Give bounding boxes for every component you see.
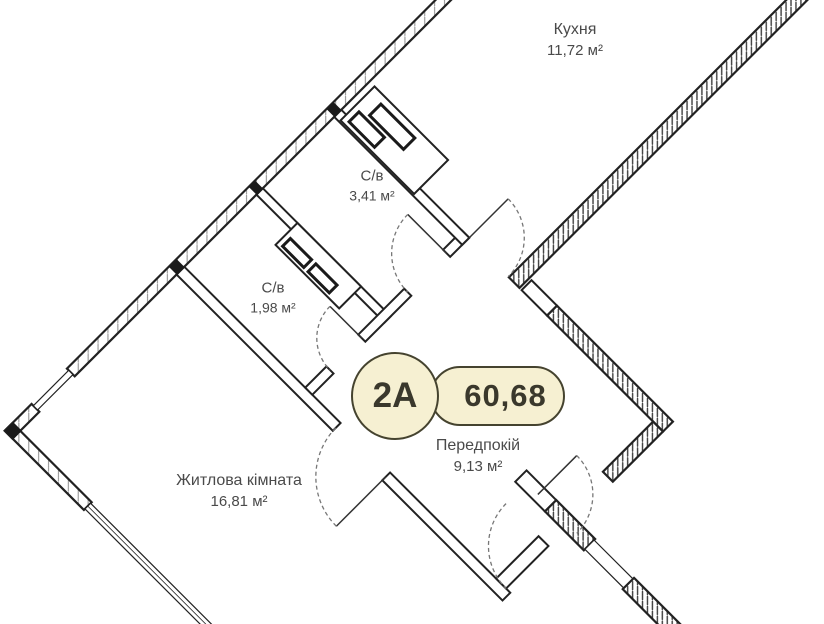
window-living-room [85,503,324,624]
unit-area-badge[interactable]: 60,68 [430,366,565,426]
floor-plan-drawing [0,0,824,624]
unit-number: 2A [373,376,418,416]
unit-total-area: 60,68 [464,378,547,414]
window-top-left [33,370,73,410]
unit-number-badge[interactable]: 2A [351,352,439,440]
outer-wall-left [5,423,325,624]
floor-plan-canvas: Кухня 11,72 м² С/в 3,41 м² С/в 1,98 м² Ж… [0,0,824,624]
wall-bathroom-kitchen [334,81,497,244]
kitchen-window-wall [509,0,824,288]
wall-living-hallway [177,267,511,601]
wall-bathroom-divider [241,188,391,338]
